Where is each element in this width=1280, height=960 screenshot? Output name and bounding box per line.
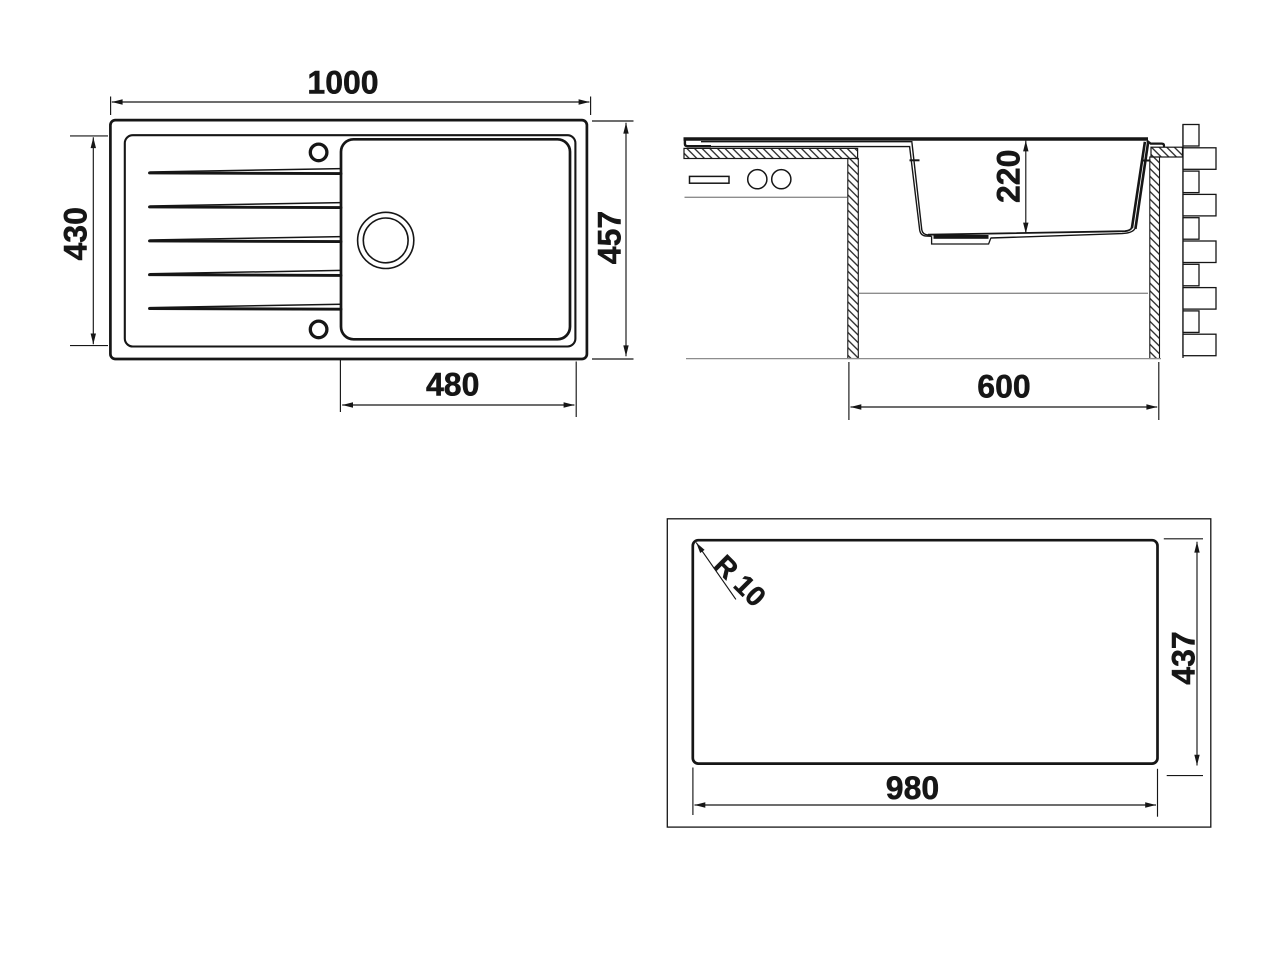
svg-text:437: 437 [1165,631,1201,684]
svg-text:1000: 1000 [307,65,378,101]
svg-text:220: 220 [990,150,1026,203]
svg-text:600: 600 [977,369,1030,405]
svg-text:480: 480 [426,367,479,403]
svg-text:430: 430 [58,207,94,260]
svg-text:980: 980 [886,770,939,806]
svg-text:457: 457 [592,211,628,264]
